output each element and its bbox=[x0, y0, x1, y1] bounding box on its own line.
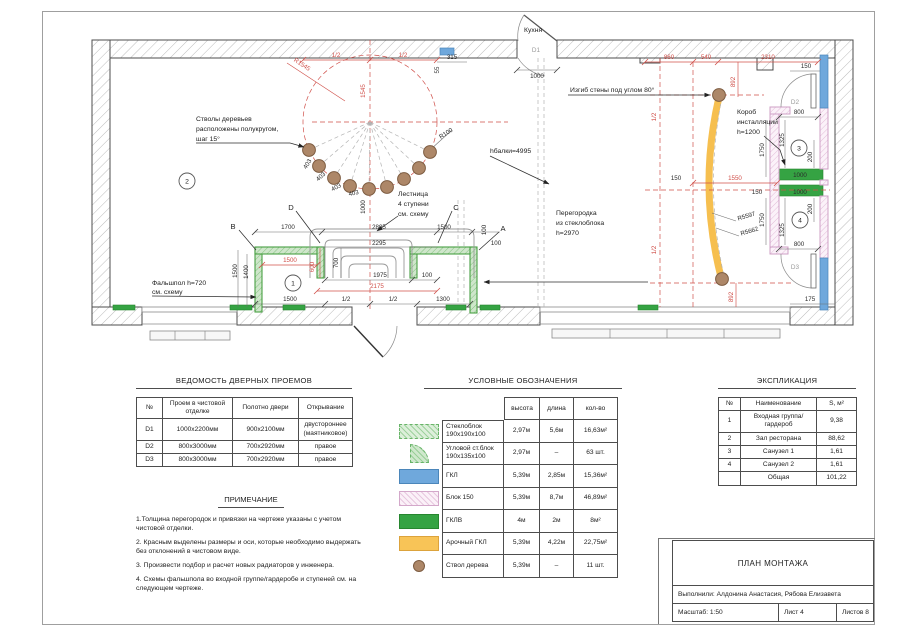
door-cell: 800х3000мм bbox=[163, 440, 233, 453]
dim-1975: 1975 bbox=[373, 272, 387, 279]
door-schedule-title: ВЕДОМОСТЬ ДВЕРНЫХ ПРОЕМОВ bbox=[136, 376, 352, 389]
door-row: D2800х3000мм700х2920ммправое bbox=[137, 440, 353, 453]
explication-header: S, м² bbox=[817, 398, 857, 411]
gklv-swatch bbox=[399, 514, 439, 529]
explication-cell: Санузел 1 bbox=[741, 445, 817, 458]
dim-2310: 2310 bbox=[761, 54, 775, 61]
dim-r5597: R5597 bbox=[737, 210, 757, 222]
explication-row: Общая101,22 bbox=[719, 472, 857, 485]
dim-540: 540 bbox=[701, 54, 712, 61]
duct-note-line1: Короб bbox=[737, 108, 756, 116]
dim-100-b: 100 bbox=[491, 240, 502, 247]
dim-1500-bottom: 1500 bbox=[283, 296, 297, 303]
dim-1750-top: 1750 bbox=[759, 143, 766, 157]
blok150-swatch bbox=[399, 491, 439, 506]
dim-403-4: 403 bbox=[348, 189, 360, 198]
door-schedule-section: ВЕДОМОСТЬ ДВЕРНЫХ ПРОЕМОВ №Проем в чисто… bbox=[136, 376, 352, 467]
door-d2-label: D2 bbox=[791, 99, 800, 106]
door-cell: правое bbox=[299, 454, 353, 467]
explication-cell: 3 bbox=[719, 445, 741, 458]
bend-note: Изгиб стены под углом 80° bbox=[570, 86, 655, 94]
explication-row: 2Зал ресторана88,62 bbox=[719, 432, 857, 445]
duct-note-line3: h=1200 bbox=[737, 129, 760, 136]
dim-1325-bot: 1325 bbox=[779, 223, 786, 237]
dim-1550: 1550 bbox=[728, 175, 742, 182]
dim-1000-d1: 1000 bbox=[530, 73, 544, 80]
dim-half-r1: 1/2 bbox=[651, 112, 658, 121]
dim-1500-top: 1500 bbox=[437, 224, 451, 231]
legend-height: 5,39м bbox=[504, 488, 540, 511]
legend-length: 4,22м bbox=[540, 533, 574, 556]
door-cell: правое bbox=[299, 440, 353, 453]
legend-length: – bbox=[540, 555, 574, 578]
legend-header: длина bbox=[540, 397, 574, 420]
explication-section: ЭКСПЛИКАЦИЯ №НаименованиеS, м²1Входная г… bbox=[718, 376, 856, 486]
legend-height: 5,39м bbox=[504, 555, 540, 578]
explication-cell: Зал ресторана bbox=[741, 432, 817, 445]
door-header: Проем в чистовой отделке bbox=[163, 398, 233, 419]
dim-150-arc: 150 bbox=[671, 175, 682, 182]
entrance-door bbox=[354, 326, 397, 357]
dim-half-tl: 1/2 bbox=[332, 52, 341, 59]
title-block-divider-v bbox=[658, 538, 659, 624]
stairs-note-line2: 4 ступени bbox=[398, 201, 429, 208]
red-dimension-lines bbox=[259, 40, 830, 312]
note-item-4: 4. Схемы фальшпола во входной группе/гар… bbox=[136, 576, 366, 594]
explication-title: ЭКСПЛИКАЦИЯ bbox=[718, 376, 856, 389]
duct-note-line2: инсталляции bbox=[737, 119, 778, 126]
legend-swatch-cell bbox=[396, 533, 442, 556]
legend-name: ГКЛВ bbox=[442, 510, 504, 533]
door-row: D11000х2200мм900х2100ммдвустороннее (мая… bbox=[137, 419, 353, 440]
door-cell: 800х3000мм bbox=[163, 454, 233, 467]
explication-body: №НаименованиеS, м²1Входная группа/ гарде… bbox=[719, 398, 857, 486]
annotations: Стволы деревьев расположены полукругом, … bbox=[152, 86, 778, 296]
explication-header: Наименование bbox=[741, 398, 817, 411]
dim-r5662: R5662 bbox=[740, 225, 760, 237]
legend-height: 2,97м bbox=[504, 420, 540, 443]
dim-100-a: 100 bbox=[481, 224, 488, 235]
dim-half-br: 1/2 bbox=[389, 296, 398, 303]
title-block-sheets: Листов 8 bbox=[836, 603, 874, 622]
floor-note-line2: см. схему bbox=[152, 289, 183, 296]
drawing-sheet: 1 2 3 4 D C B A D1 D2 D3 Кухня 315 55 10… bbox=[0, 0, 900, 636]
dim-100-c: 100 bbox=[422, 272, 433, 279]
legend-swatch-cell bbox=[396, 510, 442, 533]
explication-cell: 1,61 bbox=[817, 459, 857, 472]
partition-note-line1: Перегородка bbox=[556, 210, 597, 217]
legend-name: Арочный ГКЛ bbox=[442, 533, 504, 556]
legend-length: – bbox=[540, 443, 574, 466]
radiator-right bbox=[552, 329, 780, 338]
notes-section: ПРИМЕЧАНИЕ 1.Толщина перегородок и привя… bbox=[136, 489, 366, 599]
door-cell: 1000х2200мм bbox=[163, 419, 233, 440]
dim-r1545: R1545 bbox=[292, 57, 312, 73]
trees-note-line2: расположены полукругом, bbox=[196, 126, 278, 133]
dim-892-bot: 892 bbox=[728, 291, 735, 302]
floor-note-line1: Фальшпол h=720 bbox=[152, 280, 206, 287]
legend-name: Блок 150 bbox=[442, 488, 504, 511]
legend-name: Угловой ст.блок 190х135х100 bbox=[442, 443, 504, 466]
explication-table: №НаименованиеS, м²1Входная группа/ гарде… bbox=[718, 397, 857, 486]
explication-row: 4Санузел 21,61 bbox=[719, 459, 857, 472]
dim-800-bot: 800 bbox=[794, 241, 805, 248]
legend-grid: высотадлинакол-воСтеклоблок 190х190х1002… bbox=[396, 397, 622, 578]
explication-cell bbox=[719, 472, 741, 485]
kitchen-label: Кухня bbox=[524, 27, 543, 34]
gkl-swatch bbox=[399, 469, 439, 484]
red-dim-labels: 1/2 1/2 1545 R1545 1500 600 2175 860 540… bbox=[283, 52, 775, 302]
dim-1300: 1300 bbox=[436, 296, 450, 303]
floor-plan: 1 2 3 4 D C B A D1 D2 D3 Кухня 315 55 10… bbox=[0, 0, 900, 375]
explication-cell: 2 bbox=[719, 432, 741, 445]
door-d1-label: D1 bbox=[532, 47, 541, 54]
explication-header: № bbox=[719, 398, 741, 411]
explication-row: 3Санузел 11,61 bbox=[719, 445, 857, 458]
explication-cell: Входная группа/ гардероб bbox=[741, 411, 817, 432]
dim-half-tr: 1/2 bbox=[399, 52, 408, 59]
legend-qty: 46,89м² bbox=[574, 488, 618, 511]
door-schedule-body: №Проем в чистовой отделкеПолотно двериОт… bbox=[137, 398, 353, 467]
door-d3-label: D3 bbox=[791, 264, 800, 271]
partition-note-line3: h=2970 bbox=[556, 230, 579, 237]
door-cell: D3 bbox=[137, 454, 163, 467]
explication-cell: 101,22 bbox=[817, 472, 857, 485]
axis-d-label: D bbox=[288, 203, 294, 212]
legend-swatch-cell bbox=[396, 465, 442, 488]
trees-note-line3: шаг 15° bbox=[196, 135, 220, 143]
trunk-swatch bbox=[413, 560, 425, 572]
notes-title: ПРИМЕЧАНИЕ bbox=[218, 495, 284, 508]
stairs-note-line1: Лестница bbox=[398, 191, 428, 198]
dim-1750-bot: 1750 bbox=[759, 213, 766, 227]
legend-qty: 11 шт. bbox=[574, 555, 618, 578]
legend-swatch-cell bbox=[396, 555, 442, 578]
legend-height: 2,97м bbox=[504, 443, 540, 466]
legend-qty: 15,36м² bbox=[574, 465, 618, 488]
dim-700: 700 bbox=[333, 257, 340, 268]
legend-name: Ствол дерева bbox=[442, 555, 504, 578]
legend-length: 8,7м bbox=[540, 488, 574, 511]
room-2-number: 2 bbox=[185, 179, 189, 186]
dim-r100: R100 bbox=[438, 126, 455, 140]
door-cell: D1 bbox=[137, 419, 163, 440]
title-block-sheet: Лист 4 bbox=[778, 603, 837, 622]
legend-header: высота bbox=[504, 397, 540, 420]
dim-800-top: 800 bbox=[794, 109, 805, 116]
dim-half-r2: 1/2 bbox=[651, 245, 658, 254]
legend-swatch-cell bbox=[396, 488, 442, 511]
door-header: Полотно двери bbox=[233, 398, 299, 419]
dim-1000-stairs: 1000 bbox=[360, 200, 367, 214]
notes-list: 1.Толщина перегородок и привязки на черт… bbox=[136, 516, 366, 594]
title-block-name: ПЛАН МОНТАЖА bbox=[672, 540, 874, 586]
legend-name: ГКЛ bbox=[442, 465, 504, 488]
door-cell: 900х2100мм bbox=[233, 419, 299, 440]
explication-cell: 9,38 bbox=[817, 411, 857, 432]
door-row: D3800х3000мм700х2920ммправое bbox=[137, 454, 353, 467]
dim-892-top: 892 bbox=[730, 76, 737, 87]
trees-note-line1: Стволы деревьев bbox=[196, 116, 252, 123]
dim-1400: 1400 bbox=[243, 265, 250, 279]
room-4-number: 4 bbox=[798, 218, 802, 225]
dim-55: 55 bbox=[434, 66, 441, 73]
legend-swatch-cell bbox=[396, 443, 442, 466]
legend-qty: 22,75м² bbox=[574, 533, 618, 556]
dim-1500-red: 1500 bbox=[283, 257, 297, 264]
legend-spacer bbox=[442, 397, 504, 420]
title-block-authors: Выполнили: Алдонина Анастасия, Рябова Ел… bbox=[672, 585, 874, 604]
dim-150-mid: 150 bbox=[752, 189, 763, 196]
door-cell: двустороннее (маятниковое) bbox=[299, 419, 353, 440]
dim-315: 315 bbox=[447, 54, 458, 61]
explication-row: 1Входная группа/ гардероб9,38 bbox=[719, 411, 857, 432]
dim-2175: 2175 bbox=[370, 283, 384, 290]
legend-qty: 16,63м² bbox=[574, 420, 618, 443]
explication-cell: 4 bbox=[719, 459, 741, 472]
legend-swatch-cell bbox=[396, 420, 442, 443]
dim-200-bot: 200 bbox=[807, 203, 814, 214]
door-cell: 700х2920мм bbox=[233, 454, 299, 467]
door-cell: D2 bbox=[137, 440, 163, 453]
explication-cell: 88,62 bbox=[817, 432, 857, 445]
legend-qty: 8м² bbox=[574, 510, 618, 533]
legend-name: Стеклоблок 190х190х100 bbox=[442, 420, 504, 443]
stairs-note-line3: см. схему bbox=[398, 211, 429, 218]
radiator-left bbox=[150, 331, 230, 340]
door-header-row: №Проем в чистовой отделкеПолотно двериОт… bbox=[137, 398, 353, 419]
partition-note-line2: из стеклоблока bbox=[556, 219, 604, 227]
legend-length: 2,85м bbox=[540, 465, 574, 488]
dim-1000-bar1: 1000 bbox=[793, 172, 807, 179]
legend-height: 4м bbox=[504, 510, 540, 533]
legend-header: кол-во bbox=[574, 397, 618, 420]
dim-1700: 1700 bbox=[281, 224, 295, 231]
legend-spacer bbox=[396, 397, 442, 420]
dim-175: 175 bbox=[805, 296, 816, 303]
title-block-scale: Масштаб: 1:50 bbox=[672, 603, 779, 622]
dim-1325-top: 1325 bbox=[779, 133, 786, 147]
title-block-divider bbox=[658, 538, 875, 539]
room-1-number: 1 bbox=[291, 281, 295, 288]
note-item-3: 3. Произвести подбор и расчет новых ради… bbox=[136, 562, 366, 571]
dim-2295: 2295 bbox=[372, 240, 386, 247]
dim-1500-left: 1500 bbox=[232, 264, 239, 278]
dim-2895: 2895 bbox=[372, 224, 386, 231]
trunk-arc-bottom bbox=[716, 273, 729, 286]
corner-glassblock-swatch bbox=[410, 444, 429, 463]
dim-403-1: 403 bbox=[302, 158, 314, 171]
dim-1545: 1545 bbox=[360, 84, 367, 98]
trunk-arc-top bbox=[713, 89, 726, 102]
legend-length: 2м bbox=[540, 510, 574, 533]
dimension-lines bbox=[238, 62, 835, 307]
kitchen-door-d1 bbox=[518, 15, 557, 76]
room-3-number: 3 bbox=[797, 146, 801, 153]
dim-150-tr: 150 bbox=[801, 63, 812, 70]
legend-title: УСЛОВНЫЕ ОБОЗНАЧЕНИЯ bbox=[424, 376, 622, 389]
door-header: Открывание bbox=[299, 398, 353, 419]
door-cell: 700х2920мм bbox=[233, 440, 299, 453]
arched-gkl bbox=[709, 97, 724, 277]
legend-height: 5,39м bbox=[504, 465, 540, 488]
explication-header-row: №НаименованиеS, м² bbox=[719, 398, 857, 411]
note-item-1: 1.Толщина перегородок и привязки на черт… bbox=[136, 516, 366, 534]
axis-b-label: B bbox=[230, 222, 235, 231]
dim-600: 600 bbox=[309, 261, 316, 272]
explication-cell: Санузел 2 bbox=[741, 459, 817, 472]
door-schedule-table: №Проем в чистовой отделкеПолотно двериОт… bbox=[136, 397, 353, 467]
explication-cell: Общая bbox=[741, 472, 817, 485]
dim-half-bl: 1/2 bbox=[342, 296, 351, 303]
legend-qty: 63 шт. bbox=[574, 443, 618, 466]
axis-a-label: A bbox=[500, 224, 506, 233]
note-item-2: 2. Красным выделены размеры и оси, котор… bbox=[136, 539, 366, 557]
door-header: № bbox=[137, 398, 163, 419]
legend-length: 5,6м bbox=[540, 420, 574, 443]
glassblock-swatch bbox=[399, 424, 439, 439]
dim-200-top: 200 bbox=[807, 151, 814, 162]
legend-height: 5,39м bbox=[504, 533, 540, 556]
axis-c-label: C bbox=[453, 203, 459, 212]
explication-cell: 1 bbox=[719, 411, 741, 432]
legend-section: УСЛОВНЫЕ ОБОЗНАЧЕНИЯ высотадлинакол-воСт… bbox=[396, 376, 622, 578]
beam-note: hбалки=4995 bbox=[490, 147, 531, 155]
explication-cell: 1,61 bbox=[817, 445, 857, 458]
dim-860: 860 bbox=[664, 54, 675, 61]
arch-gkl-swatch bbox=[399, 536, 439, 551]
dim-1000-bar2: 1000 bbox=[793, 189, 807, 196]
